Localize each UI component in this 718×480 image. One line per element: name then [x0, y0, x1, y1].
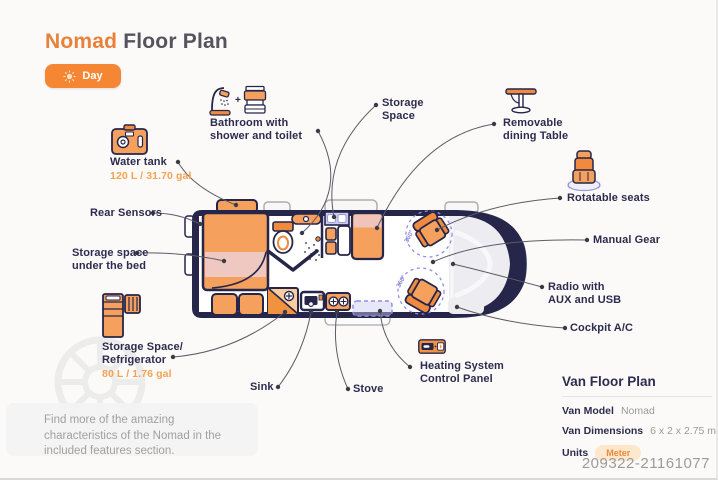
label-fridge: Storage Space/ Refrigerator 80 L / 1.76 … — [102, 341, 188, 380]
day-mode-toggle[interactable]: Day — [45, 64, 121, 88]
label-storage-space: Storage Space — [382, 97, 437, 123]
shower-icon: + — [209, 85, 269, 117]
cab-door-panel — [448, 298, 484, 314]
dinette-seat — [326, 242, 336, 254]
dinette-seat — [326, 228, 336, 240]
label-under-bed: Storage space under the bed — [72, 247, 152, 273]
watermark-id: 209322-21161077 — [582, 455, 710, 472]
fridge-value: 80 L / 1.76 gal — [102, 368, 188, 380]
page-title-accent: Nomad — [45, 30, 117, 53]
toilet — [273, 222, 293, 253]
fridge-text: Storage Space/ Refrigerator — [102, 341, 183, 366]
van-info-panel: Van Floor Plan Van Model Nomad Van Dimen… — [562, 374, 712, 461]
label-dining-table: Removable dining Table — [503, 117, 573, 143]
model-value: Nomad — [621, 405, 655, 417]
footer-note: Find more of the amazing characteristics… — [6, 403, 258, 456]
label-heating: Heating System Control Panel — [420, 360, 510, 386]
info-row-model: Van Model Nomad — [562, 405, 712, 417]
sun-icon — [63, 70, 76, 83]
toilet-icon — [245, 87, 266, 114]
label-rotatable-seats: Rotatable seats — [567, 192, 650, 205]
label-manual-gear: Manual Gear — [593, 234, 660, 247]
dimensions-label: Van Dimensions — [562, 425, 643, 437]
dining-table-icon — [505, 86, 537, 114]
floor-plan-page: 360° 360° — [0, 0, 716, 478]
page-title-rest: Floor Plan — [117, 30, 228, 53]
water-tank-icon — [110, 124, 150, 156]
rear-bench-cushion — [212, 294, 237, 315]
sink-unit — [301, 292, 324, 310]
model-label: Van Model — [562, 405, 614, 417]
label-radio: Radio with AUX and USB — [548, 281, 626, 307]
info-panel-title: Van Floor Plan — [562, 374, 712, 397]
heating-panel-icon — [418, 339, 446, 354]
dimensions-value: 6 x 2 x 2.75 m — [650, 425, 716, 437]
stove-unit — [326, 293, 350, 310]
rear-bench-cushion — [239, 294, 263, 315]
label-sink: Sink — [250, 381, 274, 394]
page-title: Nomad Floor Plan — [45, 30, 228, 54]
label-water-tank: Water tank 120 L / 31.70 gal — [110, 156, 191, 182]
refrigerator-unit — [268, 288, 298, 314]
heating-panel-location — [353, 301, 392, 316]
dinette-table — [338, 226, 350, 255]
bed-area — [203, 213, 268, 315]
water-tank-text: Water tank — [110, 156, 167, 168]
dinette-bench-storage — [354, 215, 382, 228]
label-bathroom: Bathroom with shower and toilet — [210, 117, 305, 143]
label-stove: Stove — [353, 383, 383, 396]
info-row-dimensions: Van Dimensions 6 x 2 x 2.75 m — [562, 425, 712, 437]
day-mode-label: Day — [82, 70, 102, 82]
label-rear-sensors: Rear Sensors — [90, 207, 162, 220]
rotatable-seat-icon — [566, 150, 602, 192]
label-cockpit-ac: Cockpit A/C — [570, 322, 633, 335]
refrigerator-icon — [101, 293, 143, 339]
water-tank-value: 120 L / 31.70 gal — [110, 170, 191, 182]
plus-sign: + — [235, 95, 241, 106]
